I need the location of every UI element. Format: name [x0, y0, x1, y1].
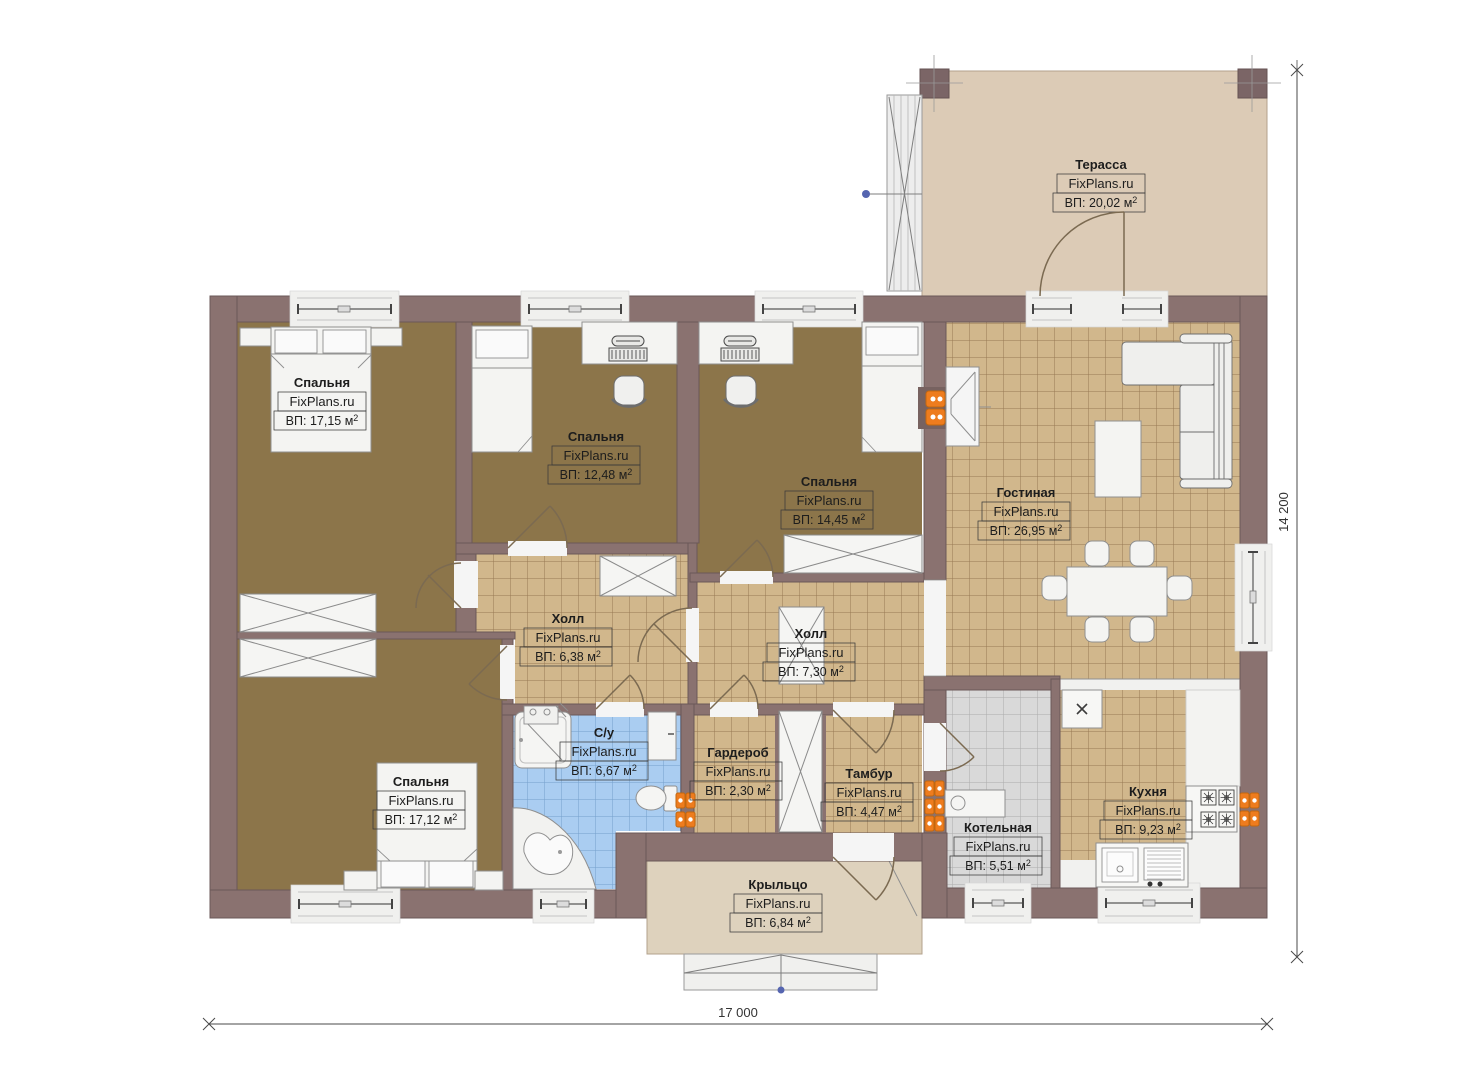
svg-text:Терасса: Терасса — [1075, 157, 1127, 172]
svg-text:Спальня: Спальня — [568, 429, 624, 444]
svg-text:ВП: 6,67 м2: ВП: 6,67 м2 — [571, 763, 637, 778]
svg-text:ВП: 2,30 м2: ВП: 2,30 м2 — [705, 783, 771, 798]
svg-text:FixPlans.ru: FixPlans.ru — [563, 448, 628, 463]
svg-text:FixPlans.ru: FixPlans.ru — [778, 645, 843, 660]
svg-text:14 200: 14 200 — [1276, 492, 1291, 532]
svg-text:ВП: 6,84 м2: ВП: 6,84 м2 — [745, 915, 811, 930]
svg-text:Гостиная: Гостиная — [997, 485, 1056, 500]
svg-text:Кухня: Кухня — [1129, 784, 1167, 799]
svg-text:Холл: Холл — [795, 626, 828, 641]
svg-text:Котельная: Котельная — [964, 820, 1032, 835]
svg-text:FixPlans.ru: FixPlans.ru — [571, 744, 636, 759]
svg-text:FixPlans.ru: FixPlans.ru — [965, 839, 1030, 854]
svg-text:ВП: 7,30 м2: ВП: 7,30 м2 — [778, 664, 844, 679]
svg-text:ВП: 20,02 м2: ВП: 20,02 м2 — [1065, 195, 1138, 210]
svg-text:FixPlans.ru: FixPlans.ru — [388, 793, 453, 808]
svg-text:Тамбур: Тамбур — [845, 766, 892, 781]
svg-text:FixPlans.ru: FixPlans.ru — [836, 785, 901, 800]
svg-text:FixPlans.ru: FixPlans.ru — [993, 504, 1058, 519]
svg-text:ВП: 4,47 м2: ВП: 4,47 м2 — [836, 804, 902, 819]
svg-text:ВП: 5,51 м2: ВП: 5,51 м2 — [965, 858, 1031, 873]
svg-text:Спальня: Спальня — [393, 774, 449, 789]
svg-text:ВП: 14,45 м2: ВП: 14,45 м2 — [793, 512, 866, 527]
svg-text:Гардероб: Гардероб — [707, 745, 768, 760]
svg-text:Спальня: Спальня — [294, 375, 350, 390]
svg-text:Спальня: Спальня — [801, 474, 857, 489]
svg-text:FixPlans.ru: FixPlans.ru — [745, 896, 810, 911]
svg-text:ВП: 6,38 м2: ВП: 6,38 м2 — [535, 649, 601, 664]
svg-text:FixPlans.ru: FixPlans.ru — [1115, 803, 1180, 818]
svg-text:ВП: 12,48 м2: ВП: 12,48 м2 — [560, 467, 633, 482]
svg-text:Крыльцо: Крыльцо — [748, 877, 807, 892]
svg-text:FixPlans.ru: FixPlans.ru — [796, 493, 861, 508]
svg-text:17 000: 17 000 — [718, 1005, 758, 1020]
svg-text:FixPlans.ru: FixPlans.ru — [535, 630, 600, 645]
svg-text:ВП: 26,95 м2: ВП: 26,95 м2 — [990, 523, 1063, 538]
svg-text:FixPlans.ru: FixPlans.ru — [289, 394, 354, 409]
svg-text:FixPlans.ru: FixPlans.ru — [705, 764, 770, 779]
svg-text:ВП: 17,12 м2: ВП: 17,12 м2 — [385, 812, 458, 827]
svg-text:ВП: 9,23 м2: ВП: 9,23 м2 — [1115, 822, 1181, 837]
svg-text:Холл: Холл — [552, 611, 585, 626]
svg-text:FixPlans.ru: FixPlans.ru — [1068, 176, 1133, 191]
svg-text:С/у: С/у — [594, 725, 615, 740]
svg-text:ВП: 17,15 м2: ВП: 17,15 м2 — [286, 413, 359, 428]
